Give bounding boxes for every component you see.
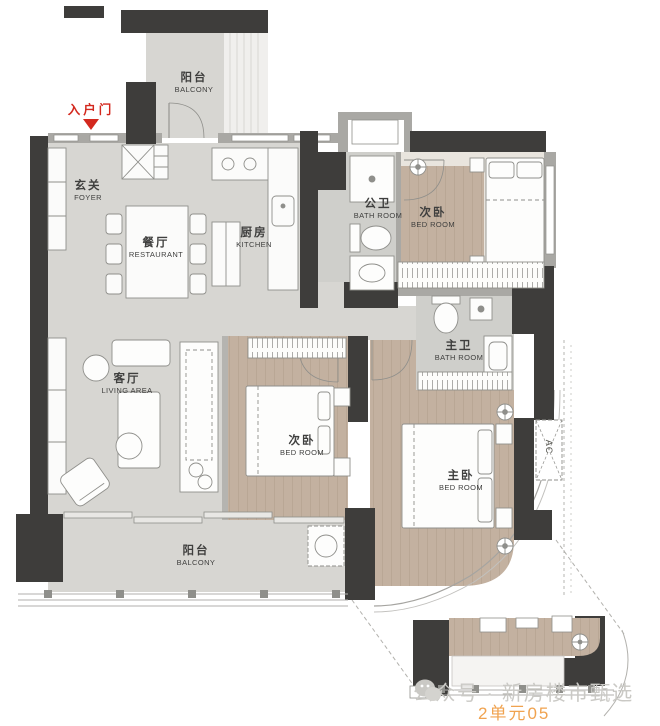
room-label-bath-public: 公卫BATH ROOM	[354, 198, 402, 220]
floorplan-canvas: 入户门 阳台BALCONY 玄关FOYER 餐厅RESTAURANT 厨房KIT…	[0, 0, 660, 726]
room-label-dining: 餐厅RESTAURANT	[129, 237, 183, 259]
ac-label: AC	[544, 438, 554, 456]
room-label-living: 客厅LIVING AREA	[101, 373, 152, 395]
room-label-kitchen: 厨房KITCHEN	[236, 227, 272, 249]
room-label-bedroom-mid: 次卧BED ROOM	[280, 435, 324, 457]
room-label-bedroom-master: 主卧BED ROOM	[439, 470, 483, 492]
entrance-arrow-icon	[83, 119, 99, 130]
room-label-foyer: 玄关FOYER	[74, 180, 102, 202]
entrance-door-label: 入户门	[68, 99, 115, 118]
room-label-bedroom-top: 次卧BED ROOM	[411, 207, 455, 229]
unit-number: 2单元05	[478, 699, 550, 724]
wechat-logo-icon	[413, 676, 443, 706]
room-label-balcony-bottom: 阳台BALCONY	[177, 545, 216, 567]
room-label-bath-master: 主卫BATH ROOM	[435, 340, 483, 362]
room-label-balcony-top: 阳台BALCONY	[175, 72, 214, 94]
